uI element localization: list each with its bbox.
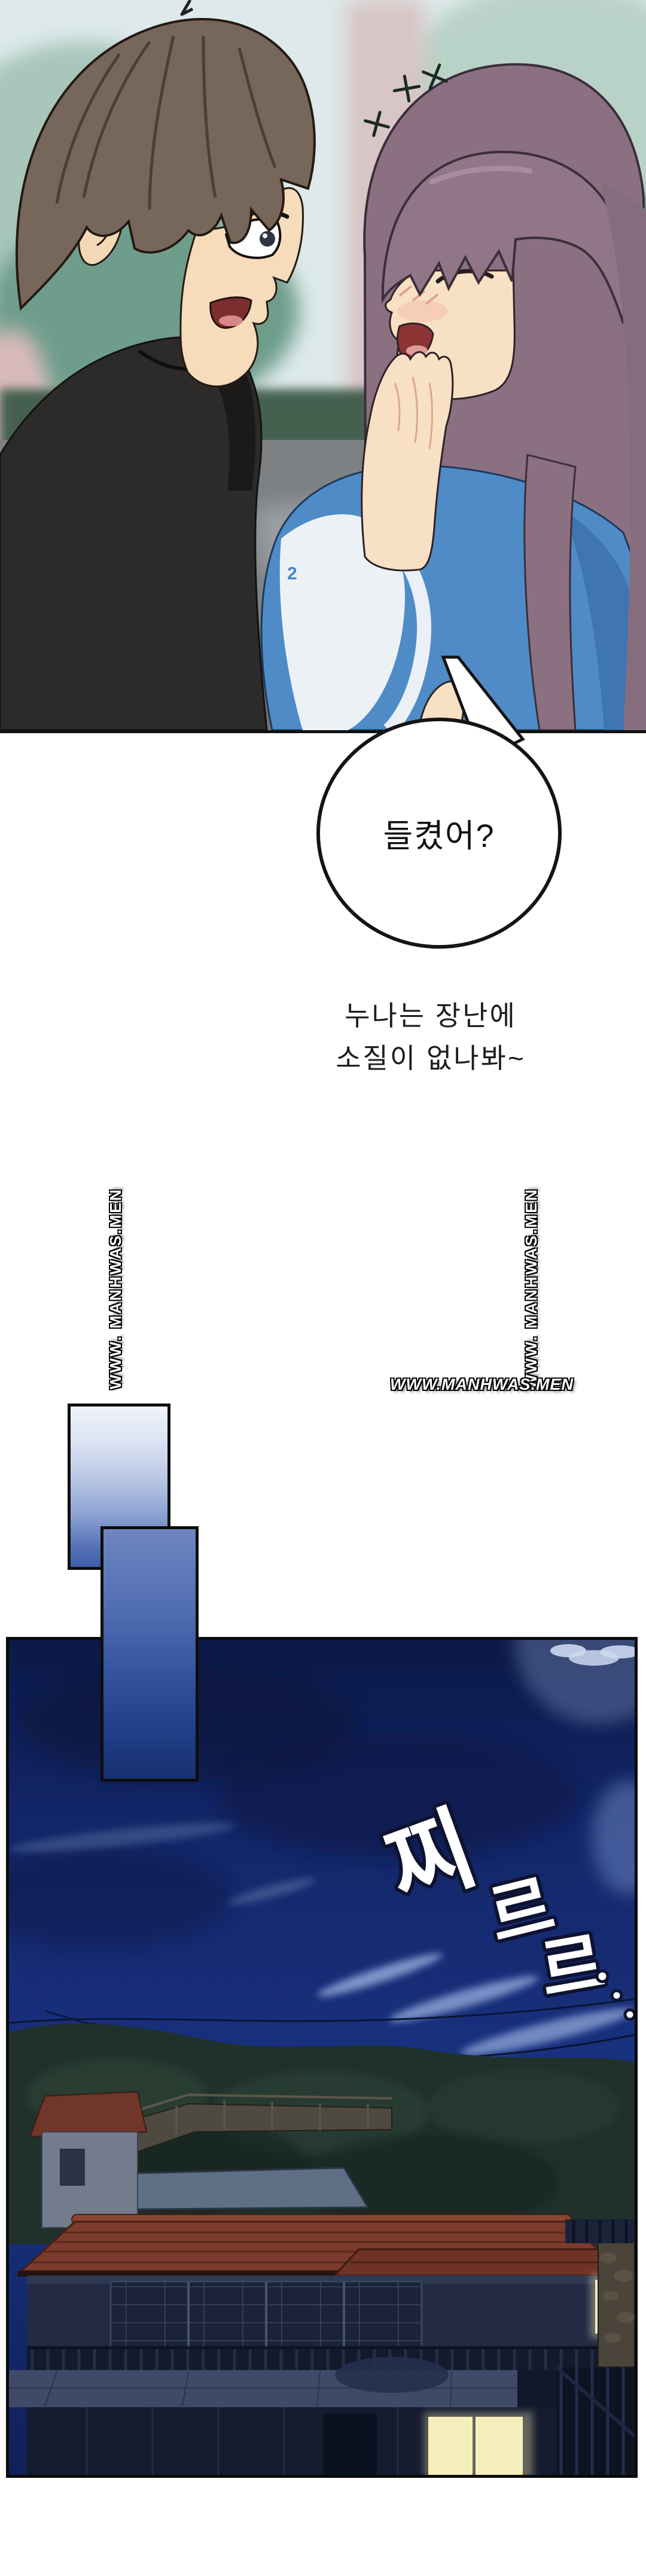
caption-line-1: 누나는 장난에 bbox=[227, 995, 634, 1037]
woman-cheek-blush bbox=[397, 300, 447, 322]
woman-shirt-number: 2 bbox=[287, 564, 297, 584]
doorway bbox=[323, 2413, 377, 2475]
sfx-char-3: 르 bbox=[534, 1924, 610, 2010]
man-pupil bbox=[260, 231, 275, 247]
caption-line-2: 소질이 없나봐~ bbox=[227, 1037, 634, 1080]
watermark-vertical-left: WWW. MANHWAS.MEN bbox=[106, 1181, 124, 1396]
left-small-wall bbox=[42, 2132, 138, 2228]
caption: 누나는 장난에 소질이 없나봐~ bbox=[227, 995, 634, 1080]
man-tongue bbox=[219, 315, 243, 326]
left-small-red-roof bbox=[30, 2092, 147, 2137]
watermark-vertical-right: WWW. MANHWAS.MEN bbox=[522, 1181, 540, 1396]
balcony-slats bbox=[27, 2349, 625, 2370]
webtoon-page: 2 bbox=[0, 0, 646, 2576]
speech-bubble bbox=[287, 622, 598, 958]
transition-rect-dark bbox=[100, 1526, 199, 1782]
main-house bbox=[9, 2214, 635, 2475]
lit-window-lower-1 bbox=[428, 2417, 473, 2475]
terrace-shadow bbox=[335, 2357, 449, 2393]
watermark-horizontal: WWW.MANHWAS.MEN bbox=[390, 1375, 574, 1394]
man-pupil-glint bbox=[263, 233, 267, 238]
speech-bubble-text: 들켰어? bbox=[319, 809, 559, 856]
left-small-window bbox=[60, 2149, 85, 2186]
lit-window-lower-2 bbox=[476, 2417, 523, 2475]
balcony-rail-top bbox=[27, 2346, 625, 2349]
street-scene-art: 2 bbox=[0, 0, 646, 730]
